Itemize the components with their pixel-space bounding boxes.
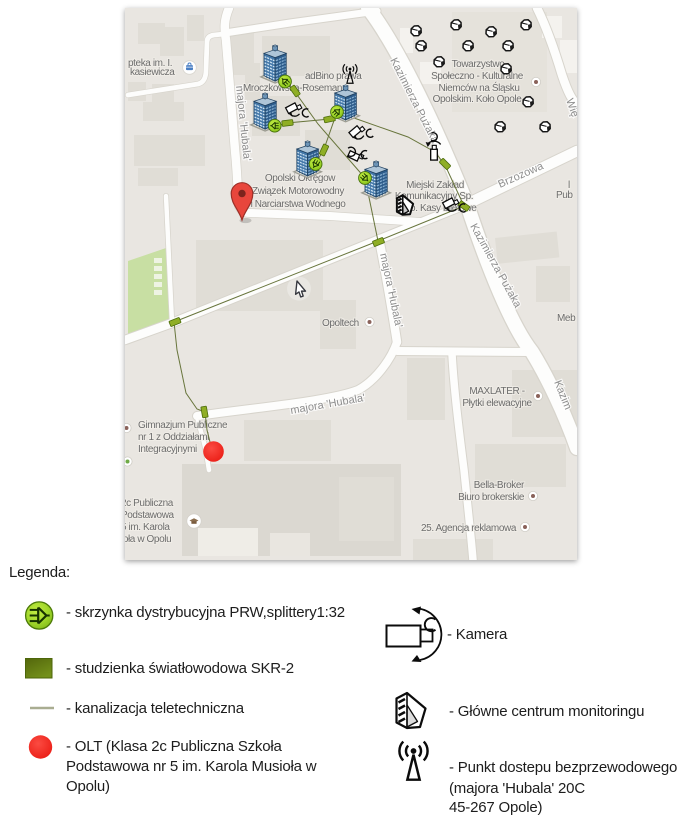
svg-text:- studzienka światłowodowa SKR: - studzienka światłowodowa SKR-2 <box>66 660 294 677</box>
svg-text:25. Agencja reklamowa: 25. Agencja reklamowa <box>421 523 517 534</box>
svg-text:MAXLATER -: MAXLATER - <box>469 386 524 397</box>
svg-text:Legenda:: Legenda: <box>9 564 70 581</box>
svg-text:Niemców na Śląsku: Niemców na Śląsku <box>438 81 519 94</box>
svg-text:2c Publiczna: 2c Publiczna <box>121 498 174 509</box>
svg-text:Płytki elewacyjne: Płytki elewacyjne <box>462 398 532 409</box>
svg-text:Opoltech: Opoltech <box>322 318 359 329</box>
svg-text:nr 1 z Oddziałami: nr 1 z Oddziałami <box>138 432 209 443</box>
svg-text:ioła w Opolu: ioła w Opolu <box>121 534 171 545</box>
svg-text:Miejski Zakład: Miejski Zakład <box>406 180 464 191</box>
svg-text:5 im. Karola: 5 im. Karola <box>121 522 170 533</box>
svg-text:Podstawowa: Podstawowa <box>121 510 175 521</box>
svg-text:Biuro brokerskie: Biuro brokerskie <box>458 492 525 503</box>
svg-text:- Główne centrum monitoringu: - Główne centrum monitoringu <box>449 703 644 720</box>
svg-text:kasiewicza: kasiewicza <box>130 67 175 78</box>
svg-text:45-267 Opole): 45-267 Opole) <box>449 799 543 816</box>
svg-text:Bella-Broker: Bella-Broker <box>474 480 525 491</box>
svg-text:- OLT (Klasa 2c Publiczna Szko: - OLT (Klasa 2c Publiczna Szkoła <box>66 738 282 755</box>
svg-text:(majora 'Hubala' 20C: (majora 'Hubala' 20C <box>449 780 585 797</box>
svg-text:- Punkt dostepu bezprzewodoweg: - Punkt dostepu bezprzewodowego <box>449 759 677 776</box>
svg-text:Opolu): Opolu) <box>66 778 110 795</box>
svg-text:- Kamera: - Kamera <box>447 626 508 643</box>
svg-text:Towarzystwo: Towarzystwo <box>452 59 506 70</box>
svg-text:adBino prawa: adBino prawa <box>305 71 362 82</box>
svg-text:i Narciarstwa Wodnego: i Narciarstwa Wodnego <box>251 199 347 210</box>
svg-text:Podstawowa nr 5 im. Karola Mus: Podstawowa nr 5 im. Karola Musioła w <box>66 758 317 775</box>
svg-text:Meb: Meb <box>557 313 576 324</box>
svg-text:Opolskim. Koło Opole: Opolskim. Koło Opole <box>433 94 523 105</box>
svg-text:Gimnazjum Publiczne: Gimnazjum Publiczne <box>138 420 228 431</box>
svg-text:Związek Motorowodny: Związek Motorowodny <box>252 186 344 197</box>
svg-text:- kanalizacja teletechniczna: - kanalizacja teletechniczna <box>66 700 245 717</box>
svg-text:Pub: Pub <box>556 190 573 201</box>
svg-text:- skrzynka dystrybucyjna PRW,s: - skrzynka dystrybucyjna PRW,splittery1:… <box>66 604 345 621</box>
svg-text:Integracyjnymi: Integracyjnymi <box>138 444 197 455</box>
